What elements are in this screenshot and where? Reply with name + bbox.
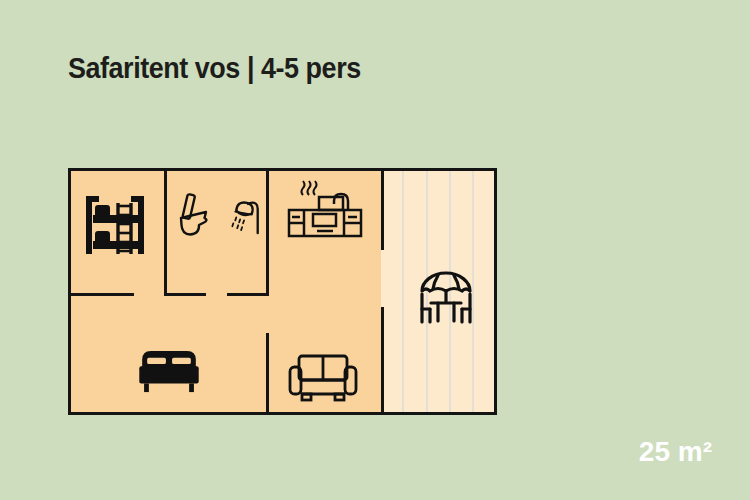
wall-bathroom-left [164, 171, 167, 293]
wall-bathroom-right [266, 171, 269, 293]
shower-icon [230, 196, 262, 235]
bunk-bed-icon [83, 196, 147, 254]
wall-veranda-bottom [381, 307, 384, 412]
safaritent-floorplan-figure: Safaritent vos | 4-5 pers [0, 0, 750, 500]
toilet-icon [177, 193, 211, 239]
wall-bathroom-bottom-right [227, 293, 269, 296]
sofa-icon [287, 352, 359, 402]
kitchen-icon [287, 180, 363, 238]
wall-bunkroom-bottom [71, 293, 134, 296]
plank-line [402, 171, 404, 412]
wall-bedroom-divider [266, 333, 269, 412]
page-title: Safaritent vos | 4-5 pers [68, 52, 361, 85]
wall-veranda-top [381, 171, 384, 250]
double-bed-icon [136, 348, 202, 394]
patio-set-icon [412, 269, 480, 327]
wall-bathroom-bottom-left [164, 293, 206, 296]
floorplan [68, 168, 497, 415]
area-label: 25 m² [639, 436, 712, 468]
